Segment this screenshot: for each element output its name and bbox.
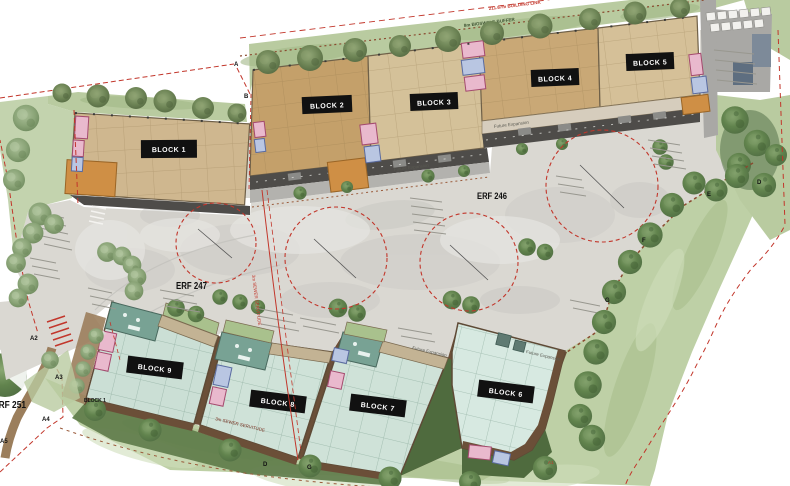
svg-text:E: E xyxy=(707,192,711,198)
svg-text:B: B xyxy=(244,94,249,100)
svg-text:A1: A1 xyxy=(548,460,554,465)
svg-text:D: D xyxy=(757,180,762,186)
svg-text:G: G xyxy=(605,298,610,304)
svg-text:A4: A4 xyxy=(42,417,50,423)
svg-text:BLOCK 1: BLOCK 1 xyxy=(152,147,186,154)
svg-text:ERF 246: ERF 246 xyxy=(477,191,507,202)
svg-text:BLOCK 4: BLOCK 4 xyxy=(538,75,573,83)
svg-text:ERF 251: ERF 251 xyxy=(0,400,26,411)
svg-text:BLOCK 2: BLOCK 2 xyxy=(310,102,345,110)
svg-text:A2: A2 xyxy=(30,336,38,342)
svg-text:BLOCK 1: BLOCK 1 xyxy=(84,398,106,404)
svg-text:F: F xyxy=(642,238,646,244)
svg-text:D: D xyxy=(263,462,268,468)
svg-text:ERF 247: ERF 247 xyxy=(176,281,207,292)
svg-text:BLOCK 5: BLOCK 5 xyxy=(633,59,668,67)
svg-text:A5: A5 xyxy=(0,439,8,445)
svg-text:A3: A3 xyxy=(55,375,63,381)
svg-text:A: A xyxy=(234,62,239,68)
svg-text:BLOCK 3: BLOCK 3 xyxy=(417,99,452,107)
svg-text:G: G xyxy=(307,465,312,471)
